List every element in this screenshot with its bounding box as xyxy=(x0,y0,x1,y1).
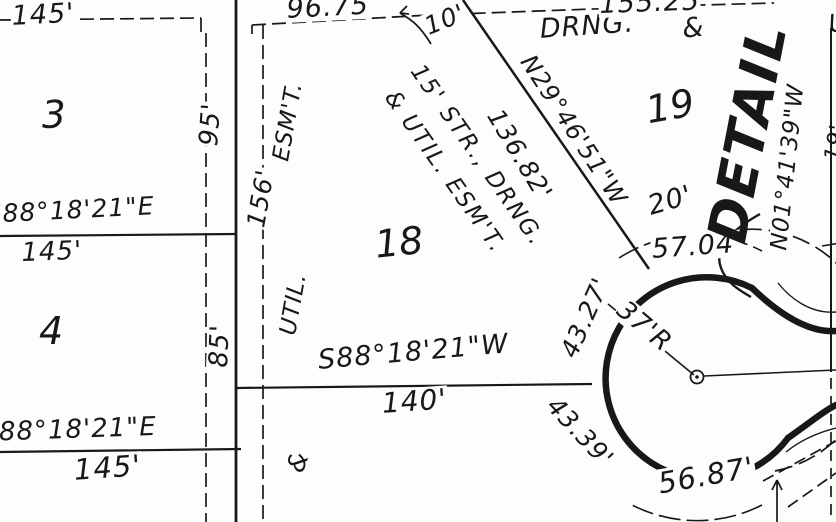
dim-145-mid: 145' xyxy=(20,238,84,266)
dim-140: 140' xyxy=(380,385,449,418)
street-edge-lower xyxy=(788,405,836,438)
culdesac-offset-dashed-arc xyxy=(672,229,836,471)
plat-map: 3 4 18 19 145' 95' S88°18'21"E 145' 85' … xyxy=(0,0,836,522)
south-measurement-arc xyxy=(632,505,762,521)
lot3-south-line xyxy=(0,234,236,236)
east-line-tick xyxy=(822,243,836,246)
easement-amp-top: & xyxy=(680,13,707,42)
southeast-dashed-line-1 xyxy=(763,441,836,481)
culdesac-center-point xyxy=(695,375,699,379)
street-centerline xyxy=(704,370,836,376)
lot-number-4: 4 xyxy=(38,312,64,350)
dim-85: 85' xyxy=(206,323,234,369)
street-edge-upper xyxy=(752,288,836,331)
dim-155-25: 155.25 xyxy=(598,0,701,18)
lot-number-19: 19 xyxy=(642,83,698,129)
lot-number-3: 3 xyxy=(40,95,67,134)
street-inner-curve-upper xyxy=(778,283,836,312)
bearing-s88-lower: S88°18'21"E xyxy=(0,414,158,446)
dim-10-leader-arrow xyxy=(400,6,409,14)
lot-number-18: 18 xyxy=(372,221,426,264)
dim-145-top: 145' xyxy=(10,0,76,30)
bottom-arrow-marker xyxy=(772,480,782,522)
dim-96-75: 96.75 xyxy=(285,0,371,23)
dim-95: 95' xyxy=(196,101,225,148)
southeast-dashed-line-2 xyxy=(788,473,836,507)
dim-145-bottom: 145' xyxy=(72,451,143,485)
